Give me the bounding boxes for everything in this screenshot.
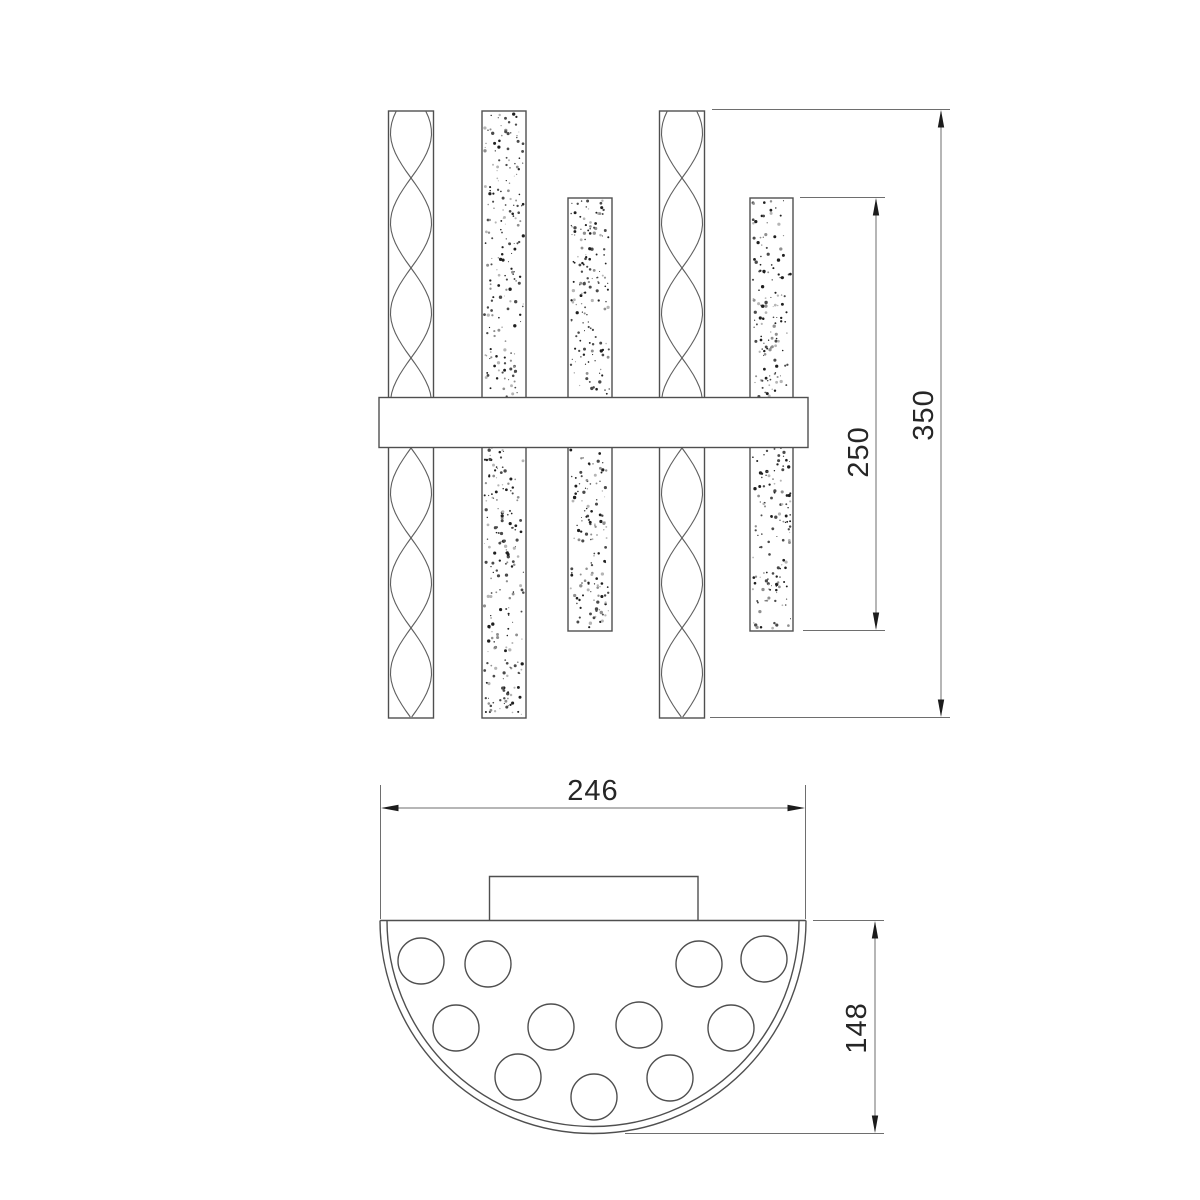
plan-view: 246 148 <box>380 775 884 1134</box>
dim-350-arrow-up <box>938 110 944 128</box>
dim-246-label: 246 <box>567 775 618 807</box>
tube-hole <box>571 1074 617 1120</box>
tube-hole <box>616 1002 662 1048</box>
tube-hole <box>398 938 444 984</box>
dim-246-arrow-left <box>381 805 399 811</box>
technical-drawing-canvas: 250 350 <box>0 0 1200 1200</box>
shade-inner-arc <box>387 921 799 1127</box>
tube-hole <box>465 941 511 987</box>
dim-350-label: 350 <box>908 389 940 440</box>
tube-holes <box>398 936 787 1120</box>
dim-148-arrow-up <box>872 921 878 939</box>
dim-246-arrow-right <box>788 805 806 811</box>
tube-hole <box>433 1005 479 1051</box>
tube-hole <box>647 1055 693 1101</box>
tube-hole <box>741 936 787 982</box>
tube-hole <box>495 1054 541 1100</box>
dim-250-arrow-up <box>873 198 879 216</box>
dimension-246: 246 <box>381 775 806 919</box>
tube-hole <box>528 1004 574 1050</box>
front-view: 250 350 <box>379 110 950 719</box>
lamp-dimension-drawing: 250 350 <box>0 0 1200 1200</box>
dim-250-arrow-down <box>873 613 879 631</box>
tube-hole <box>708 1005 754 1051</box>
dim-148-label: 148 <box>841 1002 873 1053</box>
dimension-250: 250 <box>800 198 885 631</box>
dim-350-arrow-down <box>938 700 944 718</box>
mounting-plate <box>490 877 699 921</box>
dim-250-label: 250 <box>843 426 875 477</box>
tube-hole <box>676 941 722 987</box>
mounting-crossbar <box>379 398 808 448</box>
dim-148-arrow-down <box>872 1116 878 1134</box>
